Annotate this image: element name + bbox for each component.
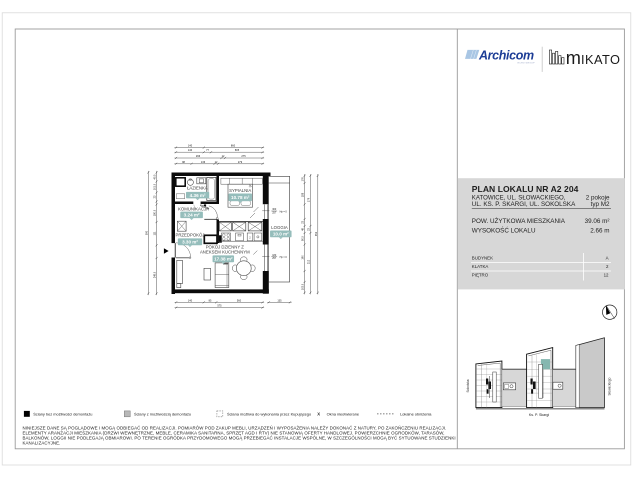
svg-text:103.5: 103.5 <box>302 283 305 290</box>
svg-text:275: 275 <box>241 155 246 158</box>
svg-text:IKATO: IKATO <box>581 52 620 67</box>
svg-text:40.5: 40.5 <box>154 174 157 179</box>
svg-text:860: 860 <box>231 145 236 148</box>
svg-text:Słowackiego: Słowackiego <box>607 377 611 395</box>
svg-text:111: 111 <box>154 231 157 235</box>
svg-text:BUDYNEK: BUDYNEK <box>472 255 493 260</box>
svg-text:3.30 m²: 3.30 m² <box>182 240 198 245</box>
svg-text:80.5: 80.5 <box>302 235 305 240</box>
svg-text:Ściany bez możliwości demontaż: Ściany bez możliwości demontażu <box>33 411 92 416</box>
svg-text:135: 135 <box>277 299 282 302</box>
svg-text:805: 805 <box>235 149 240 152</box>
svg-text:140: 140 <box>188 299 193 302</box>
svg-text:352: 352 <box>315 231 318 236</box>
svg-text:X: X <box>317 411 320 416</box>
svg-text:190: 190 <box>302 255 305 260</box>
svg-text:257: 257 <box>272 212 277 215</box>
svg-text:248.5: 248.5 <box>154 271 157 278</box>
svg-text:ECHO GROUP: ECHO GROUP <box>518 62 536 64</box>
svg-text:188: 188 <box>302 192 305 197</box>
svg-text:279: 279 <box>238 161 243 164</box>
svg-text:Sokolska: Sokolska <box>466 379 470 392</box>
svg-text:ANEKSEM KUCHENNYM: ANEKSEM KUCHENNYM <box>200 250 250 255</box>
svg-text:140: 140 <box>188 149 193 152</box>
svg-text:SYPIALNIA: SYPIALNIA <box>229 188 251 193</box>
svg-text:2.66 m: 2.66 m <box>590 228 609 235</box>
svg-text:590: 590 <box>145 230 148 235</box>
svg-text:LOGGIA: LOGGIA <box>271 225 288 230</box>
svg-text:m: m <box>566 48 581 68</box>
svg-text:Hp = 0: Hp = 0 <box>280 210 288 213</box>
svg-text:Lokalne obniżenia: Lokalne obniżenia <box>400 411 432 416</box>
svg-text:Archicom: Archicom <box>478 49 534 63</box>
svg-text:10.0 m²: 10.0 m² <box>273 232 289 237</box>
svg-text:PIĘTRO: PIĘTRO <box>472 273 489 278</box>
svg-text:Ściana możliwa do wykonania pr: Ściana możliwa do wykonania przez Kupują… <box>227 411 311 416</box>
svg-text:180: 180 <box>272 254 277 257</box>
svg-text:UL. KS. P. SKARGI, UL. SOKOLSK: UL. KS. P. SKARGI, UL. SOKOLSKA <box>472 201 576 208</box>
svg-text:PRZEDPOKÓJ: PRZEDPOKÓJ <box>175 233 204 238</box>
svg-text:POKÓJ DZIENNY Z: POKÓJ DZIENNY Z <box>206 244 245 249</box>
svg-text:2 pokoje: 2 pokoje <box>586 195 610 202</box>
svg-text:typ M2: typ M2 <box>591 201 610 208</box>
svg-text:Ściany z możliwością demontażu: Ściany z możliwością demontażu <box>134 411 191 416</box>
svg-text:176: 176 <box>302 177 305 182</box>
svg-text:257: 257 <box>272 257 277 260</box>
svg-text:136: 136 <box>201 161 206 164</box>
svg-text:212: 212 <box>307 259 310 264</box>
svg-text:NINIEJSZE DANE SĄ POGLĄDOWE I: NINIEJSZE DANE SĄ POGLĄDOWE I MOGĄ ODBIE… <box>23 426 447 431</box>
svg-text:140: 140 <box>188 145 193 148</box>
svg-text:A: A <box>606 255 609 260</box>
svg-text:KLATKA: KLATKA <box>472 264 489 269</box>
svg-text:PLAN LOKALU NR A2 204: PLAN LOKALU NR A2 204 <box>472 184 579 194</box>
svg-text:179: 179 <box>307 197 310 202</box>
svg-text:ŁAZIENKA: ŁAZIENKA <box>187 185 208 190</box>
svg-text:17.38 m²: 17.38 m² <box>214 257 233 262</box>
svg-text:Okna nieotwierane: Okna nieotwierane <box>327 411 359 416</box>
svg-text:39.06 m²: 39.06 m² <box>585 218 610 225</box>
svg-text:KATOWICE, UL. SŁOWACKIEGO,: KATOWICE, UL. SŁOWACKIEGO, <box>472 195 566 202</box>
svg-text:Ks. P. Skargi: Ks. P. Skargi <box>529 413 550 417</box>
svg-text:101.5: 101.5 <box>154 183 157 190</box>
svg-text:Hp = 0: Hp = 0 <box>280 256 288 259</box>
svg-text:296: 296 <box>196 155 201 158</box>
svg-text:10.78 m²: 10.78 m² <box>231 195 250 200</box>
svg-text:KANALIZACYJNE.: KANALIZACYJNE. <box>23 440 61 445</box>
svg-text:4.36 m²: 4.36 m² <box>190 193 206 198</box>
svg-text:3.24 m²: 3.24 m² <box>184 213 200 218</box>
svg-text:180.5: 180.5 <box>154 209 157 216</box>
svg-text:300: 300 <box>272 208 277 211</box>
svg-text:BALKONÓW, LOGGII NIE PODLEGAJĄ: BALKONÓW, LOGGII NIE PODLEGAJĄ OBMIAROWI… <box>23 435 456 440</box>
svg-text:560: 560 <box>237 299 242 302</box>
svg-text:KOMUNIKACJA: KOMUNIKACJA <box>178 207 209 212</box>
svg-text:12: 12 <box>604 273 609 278</box>
svg-text:ELEMENTY ARANŻACJI MIESZKANIA: ELEMENTY ARANŻACJI MIESZKANIA (DRZWI WEW… <box>23 430 445 435</box>
svg-text:575: 575 <box>217 305 222 308</box>
